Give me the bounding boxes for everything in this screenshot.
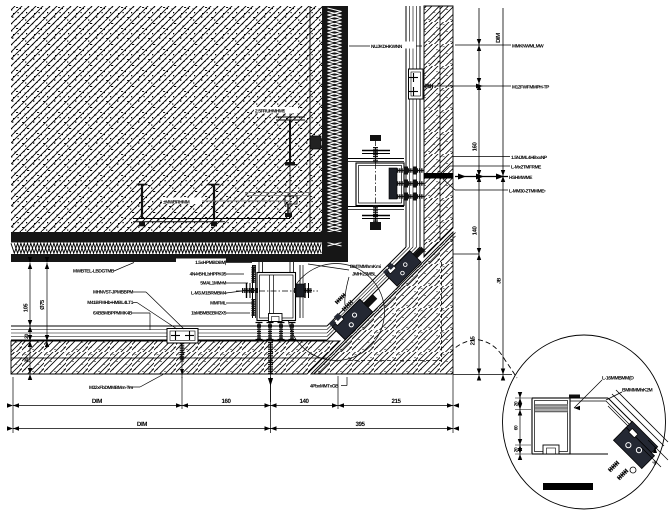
svg-text:160: 160 <box>472 142 479 152</box>
svg-text:DIM: DIM <box>137 421 147 428</box>
svg-text:HSHMWME: HSHMWME <box>509 175 533 181</box>
svg-text:1.5NJML4HBxxNP: 1.5NJML4HBxxNP <box>511 155 548 161</box>
svg-text:1bMBMBEBM2X5: 1bMBMBEBM2X5 <box>191 311 227 317</box>
svg-text:60: 60 <box>514 425 520 430</box>
svg-text:1.5xHPMBDBM|: 1.5xHPMBDBM| <box>195 260 226 266</box>
svg-text:5MAL1MM•M: 5MAL1MM•M <box>200 281 226 287</box>
svg-text:DIM: DIM <box>92 398 102 405</box>
svg-text:±MWBRHMM: ±MWBRHMM <box>163 200 190 206</box>
svg-text:2.5FRUHMHM¶: 2.5FRUHMHM¶ <box>255 109 285 115</box>
svg-text:L-M3.M1BRMBM4: L-M3.M1BRMBM4 <box>191 291 227 297</box>
svg-text:MWBTEL-LBDGTMB: MWBTEL-LBDGTMB <box>73 269 115 275</box>
svg-text:NUJKDHKWNN: NUJKDHKWNN <box>371 44 403 50</box>
svg-text:DIM: DIM <box>495 33 502 43</box>
svg-text:140: 140 <box>299 398 309 405</box>
svg-text:MHNVST-JPMBBPM: MHNVST-JPMBBPM <box>93 290 133 296</box>
svg-text:395: 395 <box>355 421 365 428</box>
svg-text:4PbxMMTxGB: 4PbxMMTxGB <box>310 384 339 390</box>
svg-text:4N4•BHLbHPPK05: 4N4•BHLbHPPK05 <box>190 272 227 278</box>
svg-text:BMTMMhmKmi: BMTMMhmKmi <box>350 264 381 270</box>
svg-text:20: 20 <box>514 447 520 452</box>
svg-text:6XBBMBPPMMK4B: 6XBBMBPPMMK4B <box>93 311 133 317</box>
svg-text:MMFML: MMFML <box>210 301 226 307</box>
svg-text:JB: JB <box>497 277 503 283</box>
svg-text:MMKNWMLMW: MMKNWMLMW <box>512 44 544 50</box>
svg-text:M32xFbDMMBMm-Tm: M32xFbDMMBMm-Tm <box>89 385 133 391</box>
svg-text:L-MM30-2TMMME•: L-MM30-2TMMME• <box>509 189 546 195</box>
svg-text:35: 35 <box>24 357 30 362</box>
svg-text:L-Mx2TMFRME: L-Mx2TMFRME <box>511 165 542 171</box>
svg-text:20: 20 <box>514 401 520 406</box>
svg-text:20: 20 <box>24 334 30 339</box>
svg-text:JMH•23MBL: JMH•23MBL <box>352 272 376 278</box>
svg-text:M12FWFMMPH-TP: M12FWFMMPH-TP <box>512 85 550 91</box>
svg-text:Ø75: Ø75 <box>39 299 46 310</box>
svg-text:105: 105 <box>23 303 30 313</box>
svg-text:M41BFMHb•HMBL4LT1: M41BFMHb•HMBL4LT1 <box>87 300 133 306</box>
svg-text:215: 215 <box>391 398 401 405</box>
svg-text:160: 160 <box>221 398 231 405</box>
svg-text:L-16MMBMM(D: L-16MMBMM(D <box>602 376 634 382</box>
svg-text:140: 140 <box>472 226 479 236</box>
svg-text:BMMMMhK2M: BMMMMhK2M <box>622 388 653 394</box>
